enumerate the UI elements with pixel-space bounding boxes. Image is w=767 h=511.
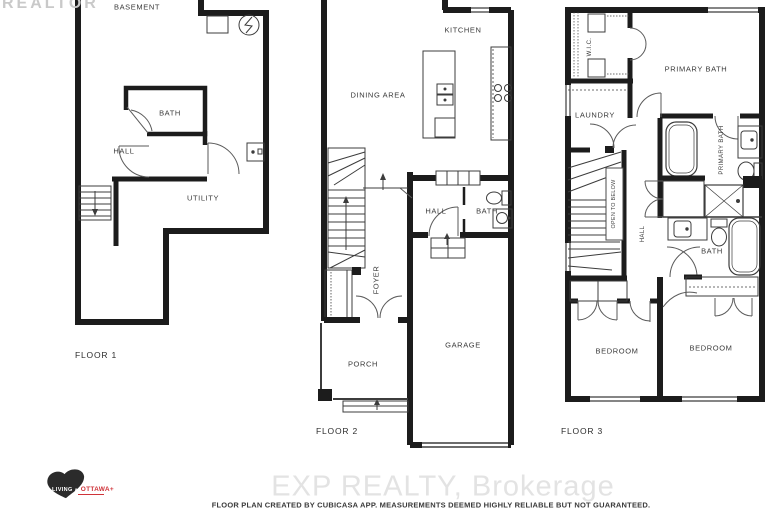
sink-icon — [738, 126, 762, 158]
room-label-primary-bath-2: PRIMARY BATH — [719, 125, 725, 174]
kitchen-steps — [436, 171, 480, 185]
bathtub-icon — [666, 122, 697, 176]
room-label-primary-bath: PRIMARY BATH — [665, 65, 728, 74]
brokerage-watermark: EXP REALTY, Brokerage — [271, 471, 614, 504]
toilet-icon — [487, 191, 512, 205]
logo-living-text: LIVING — [52, 487, 73, 493]
room-label-foyer: FOYER — [372, 266, 381, 295]
floor2-plan — [318, 0, 512, 451]
room-label-garage: GARAGE — [445, 341, 481, 350]
laundry-door-arcs — [590, 124, 636, 148]
logo-ottawa-text: OTTAWA+ — [81, 486, 114, 493]
shower-icon — [705, 185, 743, 217]
bathtub-icon — [729, 218, 760, 275]
kitchen-island — [423, 51, 455, 138]
closet — [207, 16, 228, 33]
logo-in-text: IN — [75, 487, 79, 492]
room-label-porch: PORCH — [348, 360, 378, 369]
realtor-watermark: REALTOR — [2, 0, 99, 13]
room-label-bath-f3: BATH — [701, 247, 723, 256]
toilet-icon — [711, 219, 727, 246]
door-arc — [630, 28, 646, 60]
window — [471, 4, 489, 15]
living-in-ottawa-logo: LIVING IN OTTAWA+ — [44, 466, 164, 506]
front-door-arcs — [356, 296, 402, 318]
floorplan-page: REALTOR BASEMENT BATH HALL UTILITY FLOOR… — [0, 0, 767, 511]
room-label-hall-f2: HALL — [425, 207, 446, 216]
floor2-title: FLOOR 2 — [316, 426, 358, 436]
electrical-panel-icon — [247, 143, 264, 161]
door-arc — [119, 107, 239, 177]
garage-steps — [431, 237, 465, 258]
closet — [663, 181, 704, 217]
closet — [570, 281, 627, 301]
logo-tagline-line — [78, 494, 104, 495]
room-label-bedroom-right: BEDROOM — [690, 344, 733, 353]
floor3-title: FLOOR 3 — [561, 426, 603, 436]
door-arc — [667, 247, 700, 277]
foyer-closet — [325, 270, 352, 320]
room-label-bath-f1: BATH — [159, 109, 181, 118]
stairs-arrow — [92, 209, 98, 216]
floor1-plan — [78, 0, 266, 322]
wic-shelving — [574, 12, 629, 78]
electric-meter-icon — [239, 15, 259, 35]
room-label-laundry: LAUNDRY — [575, 111, 615, 120]
room-label-bath-f2: BATH — [476, 207, 498, 216]
disclaimer-text: FLOOR PLAN CREATED BY CUBICASA APP. MEAS… — [212, 501, 651, 510]
room-label-dining-area: DINING AREA — [351, 91, 406, 100]
door-arc — [578, 301, 650, 322]
stairs-icon — [328, 148, 365, 268]
floorplan-drawing — [0, 0, 767, 511]
floor1-outline — [78, 0, 266, 322]
room-label-utility: UTILITY — [187, 194, 219, 203]
room-label-open-to-below: OPEN TO BELOW — [611, 180, 617, 229]
room-label-hall-f1: HALL — [113, 147, 134, 156]
room-label-bedroom-left: BEDROOM — [596, 347, 639, 356]
room-label-basement: BASEMENT — [114, 3, 160, 12]
floor1-title: FLOOR 1 — [75, 350, 117, 360]
room-label-hall-f3: HALL — [640, 226, 646, 243]
room-label-kitchen: KITCHEN — [444, 26, 481, 35]
vanity-icon — [668, 218, 707, 240]
garage-door — [422, 439, 508, 451]
room-label-wic: W.I.C. — [587, 38, 593, 57]
